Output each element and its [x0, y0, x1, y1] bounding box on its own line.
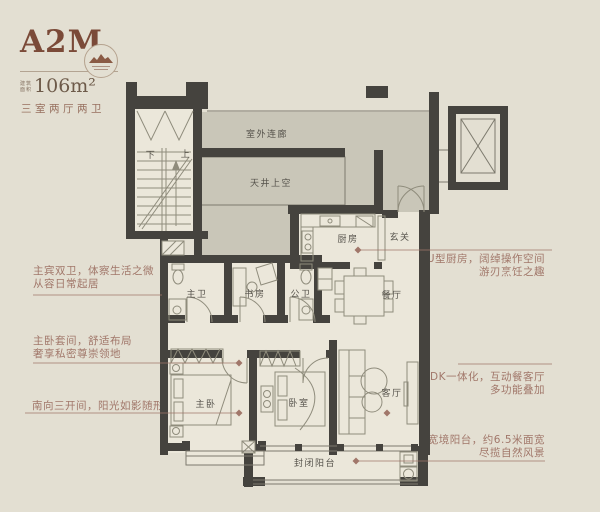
label-guest-bath: 公卫	[290, 289, 311, 300]
label-foyer: 玄关	[389, 231, 410, 243]
label-living: 客厅	[381, 387, 402, 399]
label-study: 书房	[244, 288, 265, 300]
label-corridor: 室外连廊	[246, 128, 288, 140]
label-master-bath: 主卫	[186, 288, 207, 300]
label-balcony: 封闭阳台	[294, 457, 336, 469]
elevator-icon	[439, 119, 495, 182]
label-stair-up: 上	[181, 149, 192, 160]
label-bedroom: 卧室	[288, 397, 309, 409]
label-dining: 餐厅	[381, 289, 402, 301]
label-kitchen: 厨房	[337, 233, 358, 245]
floorplan-page: A2M 建筑 面积 106m² 三室两厅两卫 主宾双卫，体察生活之微 从容日常起…	[0, 0, 600, 512]
floorplan-drawing: 室外连廊 天井上空 厨房 玄关 主卫 书房 公卫 餐厅 主卧 卧室 客厅 封闭阳…	[0, 0, 600, 512]
label-master-bed: 主卧	[195, 398, 216, 410]
label-stair-down: 下	[146, 151, 157, 161]
label-patio: 天井上空	[250, 177, 292, 189]
